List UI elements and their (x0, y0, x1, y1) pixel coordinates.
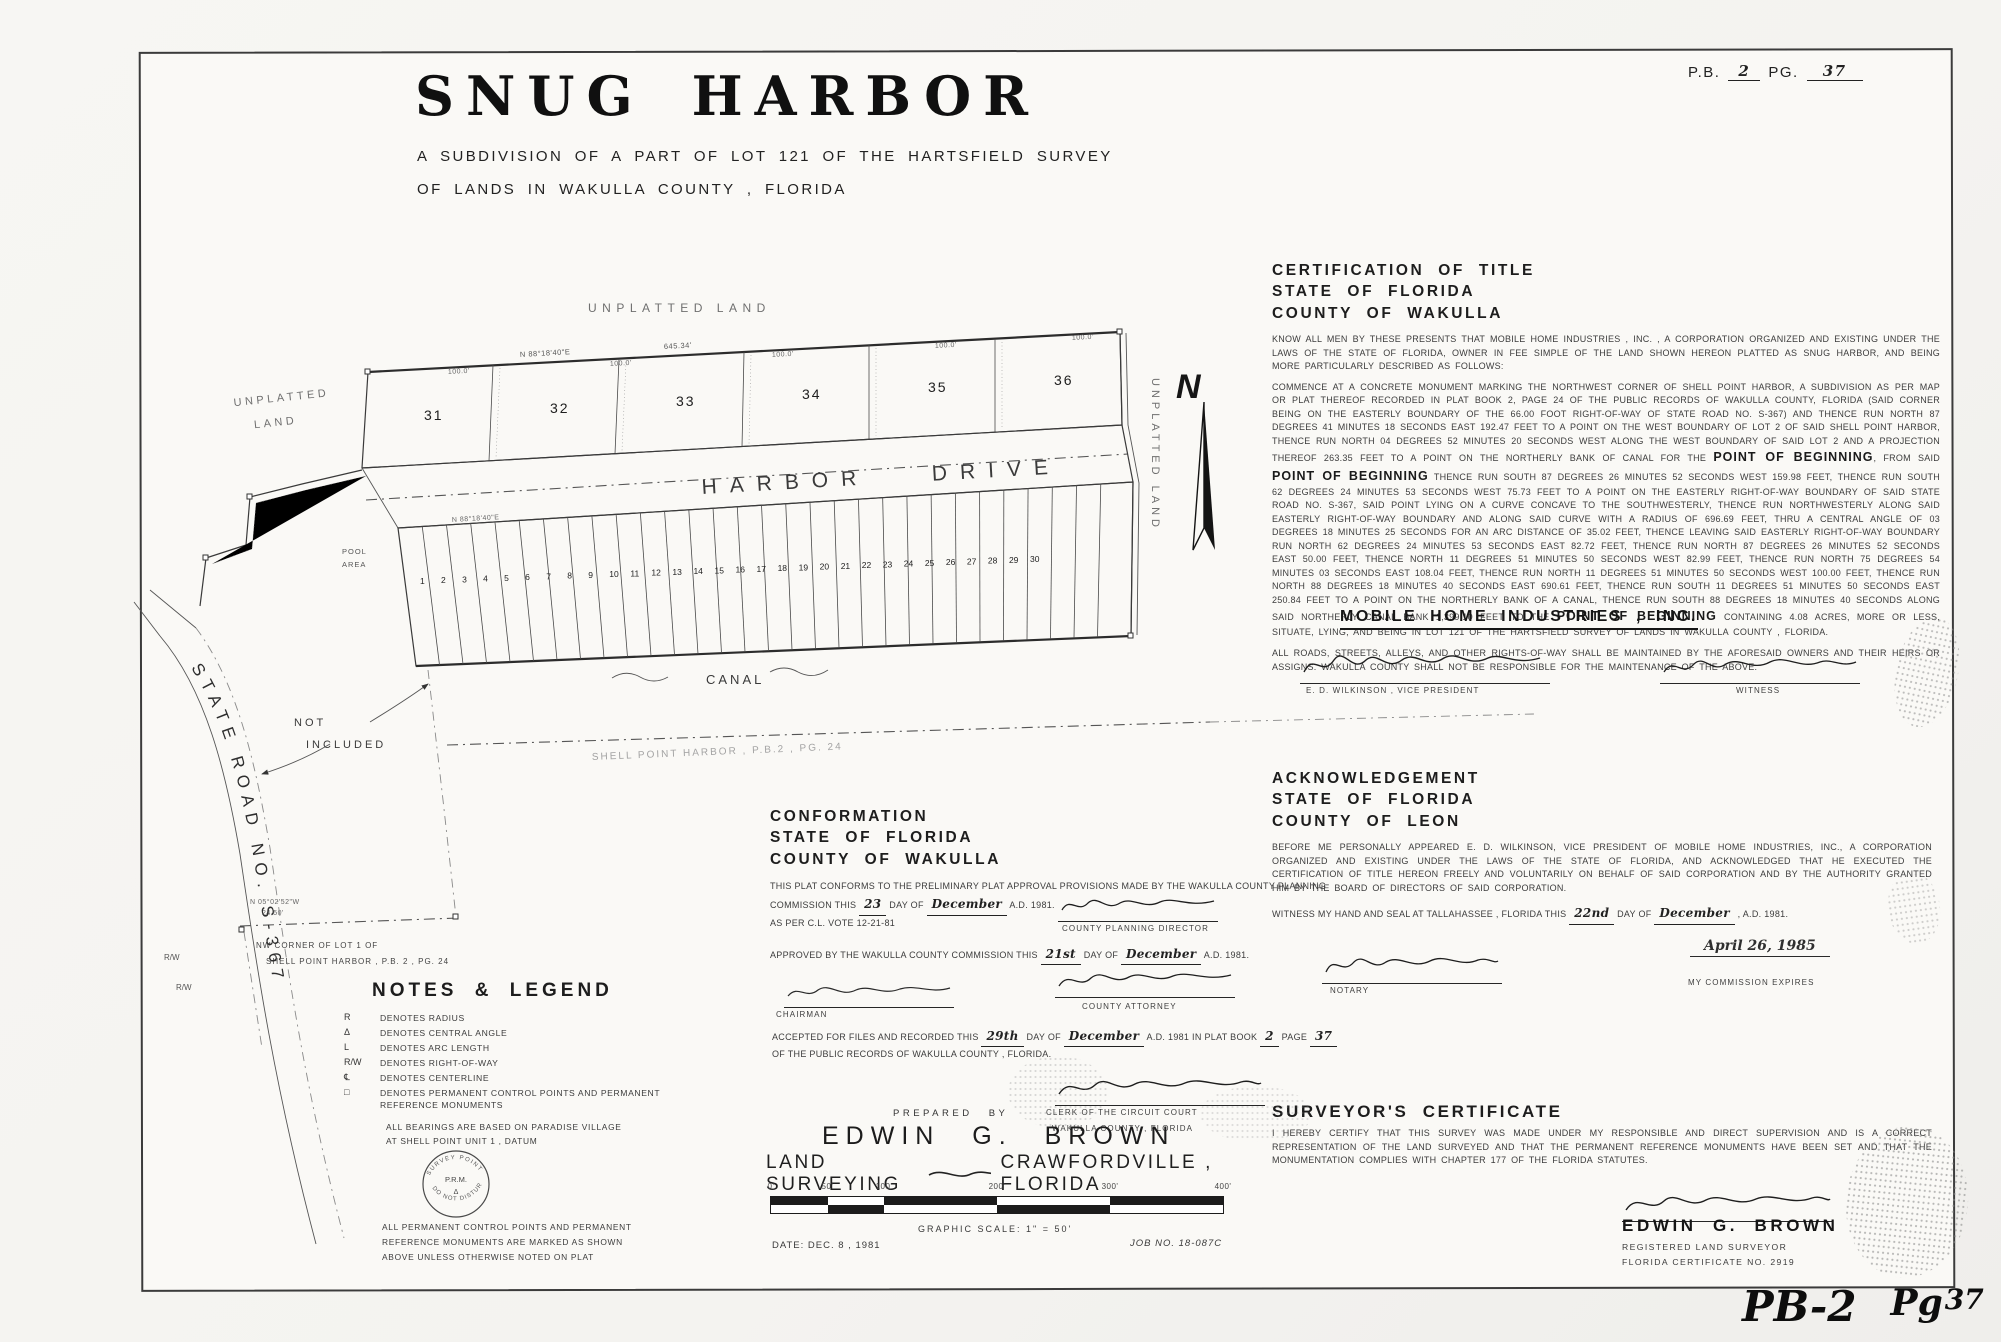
owner-signature (1300, 648, 1550, 684)
scale-tick-label: 300' (1102, 1182, 1119, 1191)
title-word-harbor: HARBOR (692, 64, 1040, 128)
notary-label: NOTARY (1330, 986, 1369, 995)
scan-speckle (1200, 1086, 1312, 1142)
legend-symbol: □ (344, 1087, 380, 1111)
plat-book-header: P.B. 2 PG. 37 (1688, 62, 1863, 81)
page-title: SNUG HARBOR (415, 64, 1040, 128)
recording-page-value: 37 (1310, 1026, 1337, 1047)
legend-text: DENOTES RIGHT-OF-WAY (380, 1057, 680, 1069)
legend-symbol: L (344, 1042, 380, 1054)
recording-month-value: December (1064, 1026, 1144, 1047)
certification-intro: KNOW ALL MEN BY THESE PRESENTS THAT MOBI… (1272, 333, 1940, 374)
approved-line: APPROVED BY THE WAKULLA COUNTY COMMISSIO… (770, 944, 1350, 965)
signature-scribble-icon (1055, 968, 1235, 992)
signature-scribble-icon (784, 982, 954, 1002)
scale-tick-label: 0' (768, 1182, 775, 1191)
conformation-month-value: December (927, 894, 1007, 915)
certification-legal-description: COMMENCE AT A CONCRETE MONUMENT MARKING … (1272, 381, 1940, 640)
description-text: THENCE RUN SOUTH 87 DEGREES 26 MINUTES 5… (1272, 472, 1940, 622)
scale-tick-label: 400' (1215, 1182, 1232, 1191)
recording-day-value: 29th (981, 1026, 1023, 1047)
owner-name-heading: MOBILE HOME INDUSTRIES , INC. (1340, 608, 1698, 626)
stamp-pg-num: 37 (1945, 1283, 1984, 1316)
scale-bar-segment (1110, 1205, 1223, 1213)
perm-monuments-note: ALL PERMANENT CONTROL POINTS AND PERMANE… (382, 1220, 632, 1265)
legend-symbol: Δ (344, 1027, 380, 1039)
city-label: CRAWFORDVILLE , FLORIDA (1001, 1152, 1238, 1196)
acknowledgement-section: ACKNOWLEDGEMENT STATE OF FLORIDA COUNTY … (1272, 768, 1932, 925)
signature-scribble-icon (1058, 894, 1218, 916)
legend-row: R DENOTES RADIUS (344, 1012, 680, 1024)
description-text: , FROM SAID (1873, 453, 1940, 463)
legend-list: R DENOTES RADIUS Δ DENOTES CENTRAL ANGLE… (344, 1012, 680, 1114)
seal-circle-icon: SURVEY POINT DO NOT DISTURB P.R.M. Δ (418, 1146, 494, 1222)
signature-scribble-icon (1300, 648, 1550, 678)
bearing-note: ALL BEARINGS ARE BASED ON PARADISE VILLA… (386, 1120, 622, 1149)
ack-witness-line: WITNESS MY HAND AND SEAL AT TALLAHASSEE … (1272, 903, 1932, 924)
point-of-beginning-emphasis: POINT OF BEGINNING (1713, 450, 1873, 464)
surveyor-name: EDWIN G. BROWN (1622, 1216, 1839, 1236)
job-number-label: JOB NO. 18-087C (1130, 1238, 1222, 1249)
scale-bar-segment (884, 1205, 997, 1213)
svg-text:P.R.M.: P.R.M. (445, 1175, 467, 1184)
squiggle-divider-icon (927, 1167, 991, 1181)
conformation-heading-1: CONFORMATION (770, 806, 1330, 827)
certification-heading-1: CERTIFICATION OF TITLE (1272, 260, 1940, 281)
legend-row: R/W DENOTES RIGHT-OF-WAY (344, 1057, 680, 1069)
signature-scribble-icon (1622, 1190, 1832, 1216)
handwritten-plat-stamp: PB-2 Pg37 (1742, 1282, 1984, 1331)
legend-row: Δ DENOTES CENTRAL ANGLE (344, 1027, 680, 1039)
notes-legend-heading: NOTES & LEGEND (372, 980, 613, 1002)
witness-signature (1660, 654, 1860, 684)
ack-month-value: December (1654, 903, 1734, 924)
scale-bar-segment (771, 1197, 828, 1205)
surveyor-title-line: REGISTERED LAND SURVEYOR (1622, 1242, 1787, 1252)
chairman-label: CHAIRMAN (776, 1010, 827, 1019)
prepared-by-label: PREPARED BY (893, 1108, 1008, 1119)
prm-seal: SURVEY POINT DO NOT DISTURB P.R.M. Δ (418, 1146, 494, 1227)
county-attorney-label: COUNTY ATTORNEY (1082, 1002, 1177, 1011)
legend-row: □ DENOTES PERMANENT CONTROL POINTS AND P… (344, 1087, 680, 1111)
legend-symbol: R (344, 1012, 380, 1024)
ack-heading-1: ACKNOWLEDGEMENT (1272, 768, 1932, 789)
conformation-body: THIS PLAT CONFORMS TO THE PRELIMINARY PL… (770, 879, 1330, 916)
planning-director-label: COUNTY PLANNING DIRECTOR (1062, 924, 1209, 933)
scale-bar-segment (771, 1205, 828, 1213)
vote-note: AS PER C.L. VOTE 12-21-81 (770, 916, 1330, 931)
graphic-scale-label: GRAPHIC SCALE: 1" = 50' (918, 1224, 1072, 1234)
subtitle-line-1: A SUBDIVISION OF A PART OF LOT 121 OF TH… (417, 148, 1113, 165)
ack-body: BEFORE ME PERSONALLY APPEARED E. D. WILK… (1272, 841, 1932, 895)
surveyor-body: I HEREBY CERTIFY THAT THIS SURVEY WAS MA… (1272, 1127, 1932, 1168)
witness-label: WITNESS (1736, 686, 1780, 695)
pb-label: P.B. (1688, 64, 1720, 81)
signature-scribble-icon (1660, 654, 1860, 678)
scale-bar-segment (1110, 1197, 1223, 1205)
scale-bar-segment (828, 1205, 885, 1213)
approved-month-value: December (1121, 944, 1201, 965)
certification-heading-3: COUNTY OF WAKULLA (1272, 303, 1940, 324)
land-surveying-label: LAND SURVEYING (766, 1152, 917, 1196)
chairman-signature (784, 982, 954, 1008)
commission-expiry-date: April 26, 1985 (1690, 938, 1830, 957)
recording-book-value: 2 (1260, 1026, 1279, 1047)
legend-text: DENOTES PERMANENT CONTROL POINTS AND PER… (380, 1087, 680, 1111)
conformation-section: CONFORMATION STATE OF FLORIDA COUNTY OF … (770, 806, 1330, 931)
approved-day-value: 21st (1041, 944, 1081, 965)
conformation-heading-3: COUNTY OF WAKULLA (770, 849, 1330, 870)
stamp-book: PB-2 (1742, 1282, 1857, 1331)
planning-director-signature (1058, 894, 1218, 922)
scale-bar-segment (997, 1197, 1110, 1205)
point-of-beginning-emphasis: POINT OF BEGINNING (1272, 469, 1429, 483)
svg-text:Δ: Δ (454, 1189, 459, 1196)
stamp-pg: Pg (1891, 1282, 1943, 1324)
graphic-scale-bar: 0' 50' 100' 200' 300' 400' (770, 1196, 1224, 1214)
date-label: DATE: DEC. 8 , 1981 (772, 1240, 881, 1251)
legend-text: DENOTES CENTRAL ANGLE (380, 1027, 680, 1039)
legend-row: ℄ DENOTES CENTERLINE (344, 1072, 680, 1084)
pb-value: 2 (1728, 62, 1760, 81)
owner-signer-label: E. D. WILKINSON , VICE PRESIDENT (1306, 686, 1479, 695)
legend-text: DENOTES ARC LENGTH (380, 1042, 680, 1054)
ack-heading-3: COUNTY OF LEON (1272, 811, 1932, 832)
scale-tick-label: 200' (989, 1182, 1006, 1191)
ack-day-value: 22nd (1569, 903, 1614, 924)
scale-bar-segment (828, 1197, 885, 1205)
legend-row: L DENOTES ARC LENGTH (344, 1042, 680, 1054)
ack-heading-2: STATE OF FLORIDA (1272, 789, 1932, 810)
surveyor-cert-line: FLORIDA CERTIFICATE NO. 2919 (1622, 1257, 1795, 1267)
conformation-day-value: 23 (859, 894, 886, 915)
scale-tick-label: 100' (876, 1182, 893, 1191)
subtitle-line-2: OF LANDS IN WAKULLA COUNTY , FLORIDA (417, 181, 847, 198)
legend-symbol: ℄ (344, 1072, 380, 1084)
pg-value: 37 (1807, 62, 1863, 81)
commission-expiry-label: MY COMMISSION EXPIRES (1688, 978, 1815, 987)
surveyor-heading: SURVEYOR'S CERTIFICATE (1272, 1100, 1932, 1123)
certification-heading-2: STATE OF FLORIDA (1272, 281, 1940, 302)
county-attorney-signature (1055, 968, 1235, 998)
pg-label: PG. (1768, 64, 1798, 81)
legend-symbol: R/W (344, 1057, 380, 1069)
scale-bar-segment (997, 1205, 1110, 1213)
scan-speckle (1008, 1056, 1108, 1128)
title-word-snug: SNUG (415, 64, 645, 128)
scanned-plat-sheet: { "page": { "pb_label": "P.B.", "pb_valu… (0, 0, 2001, 1342)
scale-tick-label: 50' (822, 1182, 834, 1191)
legend-text: DENOTES RADIUS (380, 1012, 680, 1024)
surveyors-certificate-section: SURVEYOR'S CERTIFICATE I HEREBY CERTIFY … (1272, 1100, 1932, 1168)
conformation-heading-2: STATE OF FLORIDA (770, 827, 1330, 848)
preparer-name: EDWIN G. BROWN (822, 1122, 1175, 1151)
legend-text: DENOTES CENTERLINE (380, 1072, 680, 1084)
scale-bar-segment (884, 1197, 997, 1205)
